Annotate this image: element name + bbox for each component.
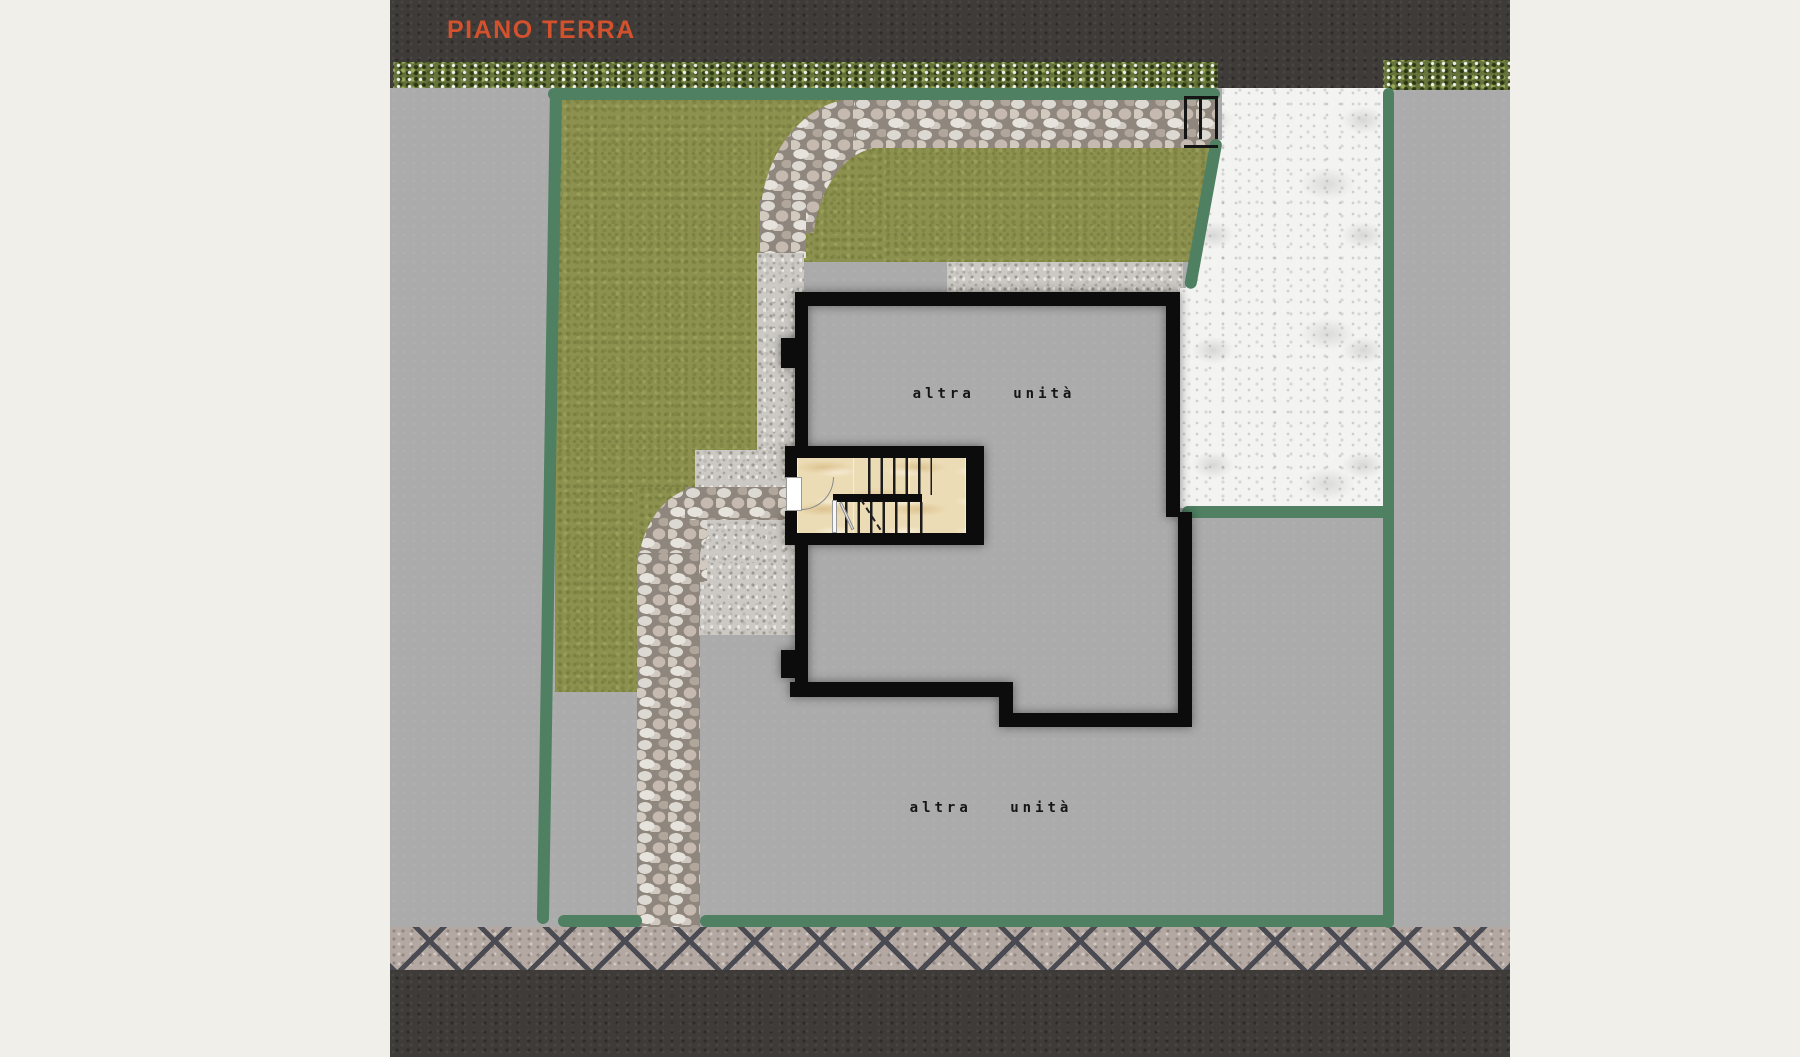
stair-half-wall xyxy=(833,494,922,502)
floor-plan-page: altra unità altra unità PIANO TERRA xyxy=(0,0,1800,1057)
path-lower-stub xyxy=(685,487,790,520)
path-upper-vertical xyxy=(760,200,806,258)
gate-bar xyxy=(1184,99,1187,139)
boundary-line-bottom-east xyxy=(700,915,1392,927)
lawn-left-lower xyxy=(555,492,642,692)
other-unit-label-lower: altra unità xyxy=(790,800,1192,816)
gravel-strip-above-house xyxy=(947,262,1183,292)
hedge-strip-right xyxy=(1383,60,1510,90)
stair-treads-lower-flight xyxy=(845,502,923,533)
cobblestone-street xyxy=(390,927,1510,970)
boundary-line-right xyxy=(1383,88,1394,928)
hedge-strip-left xyxy=(393,62,1218,88)
gate-symbol xyxy=(1184,96,1218,148)
boundary-line-driveway-bottom xyxy=(1182,506,1392,518)
gate-bar xyxy=(1215,99,1218,139)
boundary-line-top xyxy=(548,88,1220,100)
lawn-left xyxy=(555,98,757,492)
other-unit-label-upper: altra unità xyxy=(808,386,1180,402)
page-title: PIANO TERRA xyxy=(447,16,636,45)
path-upper-horizontal xyxy=(855,98,1218,148)
stair-treads-upper-flight xyxy=(868,458,932,495)
entry-door-opening xyxy=(786,477,802,511)
inner-door-jamb xyxy=(832,500,837,533)
path-lower-vertical xyxy=(637,553,700,927)
boundary-line-bottom-west xyxy=(558,915,642,927)
gate-bar xyxy=(1199,99,1202,139)
